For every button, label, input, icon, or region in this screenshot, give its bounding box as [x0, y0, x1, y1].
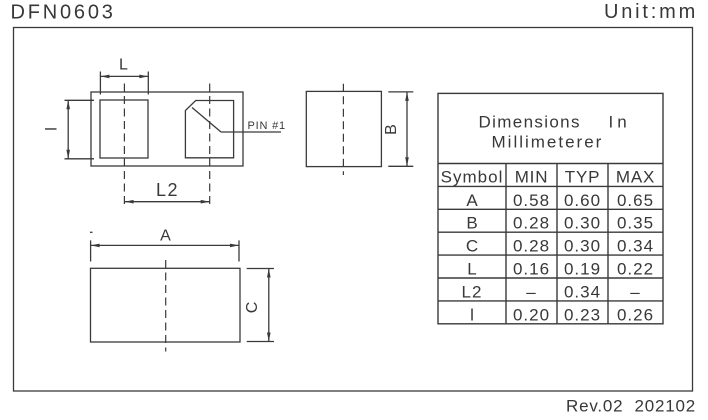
svg-text:C: C	[466, 237, 478, 256]
svg-text:B: B	[466, 214, 477, 233]
svg-text:0.23: 0.23	[564, 305, 601, 324]
svg-text:Symbol: Symbol	[441, 168, 504, 187]
svg-text:0.34: 0.34	[617, 237, 654, 256]
svg-text:Unit:mm: Unit:mm	[604, 1, 698, 23]
svg-text:0.28: 0.28	[513, 237, 550, 256]
svg-text:l: l	[44, 127, 61, 131]
svg-text:0.30: 0.30	[564, 214, 601, 233]
svg-text:MAX: MAX	[616, 168, 655, 187]
svg-text:0.35: 0.35	[617, 214, 654, 233]
svg-text:0.60: 0.60	[564, 191, 601, 210]
svg-text:0.26: 0.26	[617, 305, 654, 324]
svg-text:0.22: 0.22	[617, 260, 654, 279]
svg-text:0.16: 0.16	[513, 260, 550, 279]
svg-text:DFN0603: DFN0603	[11, 2, 116, 24]
svg-text:0.20: 0.20	[513, 305, 550, 324]
svg-text:L: L	[119, 57, 128, 74]
svg-text:0.58: 0.58	[513, 191, 550, 210]
svg-text:–: –	[630, 282, 640, 301]
svg-text:L: L	[467, 260, 476, 279]
svg-text:0.30: 0.30	[564, 237, 601, 256]
svg-text:–: –	[526, 282, 536, 301]
svg-text:PIN #1: PIN #1	[248, 120, 286, 132]
svg-text:A: A	[160, 228, 171, 245]
svg-text:0.34: 0.34	[564, 282, 601, 301]
svg-text:A: A	[466, 191, 478, 210]
svg-text:L2: L2	[462, 282, 483, 301]
svg-text:Dimensions: Dimensions	[479, 112, 581, 131]
svg-text:C: C	[244, 302, 261, 314]
svg-text:L2: L2	[156, 180, 179, 200]
svg-text:0.19: 0.19	[564, 260, 601, 279]
svg-text:Rev.02 202102: Rev.02 202102	[566, 397, 696, 416]
svg-text:In: In	[609, 112, 631, 131]
svg-text:TYP: TYP	[565, 168, 600, 187]
svg-text:B: B	[383, 124, 400, 135]
svg-text:Millimeterer: Millimeterer	[492, 133, 604, 152]
svg-text:l: l	[470, 305, 474, 324]
svg-text:0.65: 0.65	[617, 191, 654, 210]
svg-text:0.28: 0.28	[513, 214, 550, 233]
svg-text:MIN: MIN	[515, 168, 549, 187]
